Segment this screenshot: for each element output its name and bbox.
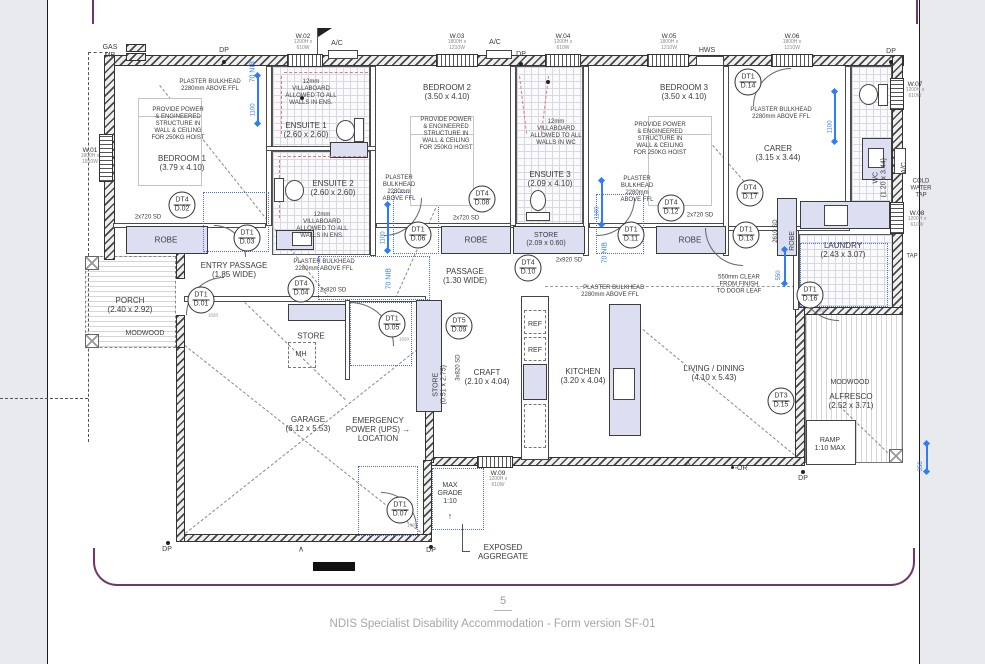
room-store-tall-label: STORE(0.51 x 2.75) [433, 365, 449, 404]
dimension-line-1100-3 [834, 92, 836, 142]
note-plaster-bulkhead-3-label: PLASTER BULKHEAD2280mm ABOVE FFL [293, 259, 354, 273]
grabrail-ens1-b [281, 76, 282, 134]
dp-dot-6 [801, 470, 805, 474]
ref-2-label: REF [528, 347, 542, 355]
door-tag-D.17: DT4D.17 [737, 180, 764, 207]
door-tag-D.05: DT1D.05 [379, 311, 406, 338]
exposed-leader-v [462, 524, 463, 551]
window-label-W.07: W.071200H x610W [906, 81, 925, 99]
door-tag-D.04: DT4D.04 [288, 276, 315, 303]
note-max-grade-label: MAXGRADE1:10 [438, 482, 463, 506]
note-villaboard-ens2-label: 12mmVILLABOARDALLOWED TO ALLWALLS IN ENS… [296, 212, 347, 240]
room-bedroom-3-label: BEDROOM 3(3.50 x 4.10) [660, 83, 708, 101]
note-cold-water-tap-label: COLDWATERTAP [911, 179, 932, 200]
note-hoist-1-label: PROVIDE POWER& ENGINEEREDSTRUCTURE INWAL… [151, 107, 204, 141]
ramp-label: RAMP1:10 MAX [815, 437, 846, 453]
kitchen-sink [613, 368, 635, 400]
note-exposed-aggregate-label: EXPOSEDAGGREGATE [478, 543, 528, 561]
page-number-underline [494, 610, 512, 611]
door-tag-D.06: DT1D.06 [405, 222, 432, 249]
swing-mark-1-label: ∧ [298, 544, 304, 553]
window-W.01 [99, 134, 113, 182]
dp-bottom-3-label: DP [798, 475, 808, 483]
sd-3x820-label: 3x820 SD [455, 354, 462, 380]
wall-segment-wall-entry-front-lower [176, 315, 185, 348]
toilet-ens2-bowl [285, 180, 304, 201]
ac-right-label: A/C [901, 162, 909, 174]
window-label-W.03: W.031800H x1210W [448, 33, 467, 51]
room-living-dining-label: LIVING / DINING(4.10 x 5.43) [684, 364, 745, 382]
ac-top-2-label: A/C [489, 39, 501, 47]
window-W.07 [890, 78, 904, 110]
room-store-nook-label: STORE [297, 331, 324, 340]
section-flag-icon [318, 28, 332, 37]
scale-bar [313, 562, 355, 571]
room-store-mid-label: STORE(2.09 x 0.60) [526, 232, 565, 248]
door-tag-D.01: DT1D.01 [188, 287, 215, 314]
robe-1-label: ROBE [155, 235, 178, 244]
door-leaf-size-D.16: 1020 [817, 307, 827, 312]
sd-2x920-label: 2x920 SD [556, 258, 582, 265]
mh-label: MH [296, 351, 307, 359]
dp-bottom-1-label: DP [162, 546, 172, 554]
door-tag-D.15: DT3D.15 [768, 388, 795, 415]
form-version-text: NDIS Specialist Disability Accommodation… [0, 618, 985, 630]
window-W.09 [477, 456, 513, 468]
toilet-ens1-bowl [336, 120, 355, 141]
window-W.04 [545, 54, 581, 67]
page-number: 5 [483, 595, 523, 607]
dp-top-3-label: DP [886, 48, 896, 56]
toilet-ens3-tank [526, 212, 550, 221]
door-tag-D.09: DT5D.09 [446, 313, 473, 340]
window-W.05 [647, 54, 689, 67]
window-W.08 [890, 202, 904, 234]
dimension-text-1100-2: 1100 [595, 206, 602, 219]
room-laundry-label: LAUNDRY(2.43 x 3.07) [821, 241, 866, 259]
room-wc-label: WC(1.20 x 3.44) [873, 158, 889, 197]
dp-top-1-label: DP [219, 47, 229, 55]
room-bedroom-2-label: BEDROOM 2(3.50 x 4.10) [423, 83, 471, 101]
window-label-W.09: W.091200H x610W [489, 470, 508, 488]
note-550-clear-label: 550mm CLEARFROM FINISHTO DOOR LEAF [717, 275, 762, 296]
robe-carer-label: ROBE [789, 231, 797, 251]
max-grade-arrow-label: ↑ [448, 511, 453, 521]
door-tag-D.16: DT1D.16 [797, 282, 824, 309]
ac-unit-2 [486, 50, 512, 59]
note-hoist-2-label: PROVIDE POWER& ENGINEEREDSTRUCTURE INWAL… [419, 117, 472, 151]
door-tag-D.14: DT1D.14 [735, 69, 762, 96]
window-label-W.04: W.041200H x610W [554, 33, 573, 51]
laundry-trough [824, 205, 848, 226]
window-W.06 [771, 54, 813, 67]
window-label-W.05: W.051800H x1210W [660, 33, 679, 51]
window-W.02 [287, 54, 323, 67]
window-label-W.01: W.011800H x1810W [81, 147, 100, 165]
room-craft-label: CRAFT(2.10 x 4.04) [465, 368, 510, 386]
dimension-text-1100-0: 1100 [251, 103, 258, 116]
room-garage-label: GARAGE(6.12 x 5.53) [286, 415, 331, 433]
door-tag-D.10: DT4D.10 [515, 255, 542, 282]
site-boundary-left [88, 52, 89, 442]
dimension-text-1100-3: 1100 [828, 120, 835, 133]
toilet-wc-bowl [859, 84, 878, 105]
dp-bottom-2-label: DP [426, 547, 436, 555]
room-kitchen-label: KITCHEN(3.20 x 4.04) [561, 367, 606, 385]
room-ensuite-2-label: ENSUITE 2(2.60 x 2.60) [311, 179, 356, 197]
note-plaster-bulkhead-6-label: ← PLASTER BULKHEAD2280mm ABOVE FFL [575, 285, 644, 299]
dimension-marker-bottom-0 [254, 120, 261, 127]
grabrail-ens1-a [284, 72, 368, 73]
dimension-text-1100-1: 1100 [381, 231, 388, 244]
ac-top-1-label: A/C [331, 40, 343, 48]
wall-segment-wall-garage-left [176, 340, 185, 542]
door-tag-D.12: DT4D.12 [658, 195, 685, 222]
dp-dot-1 [222, 60, 226, 64]
dp-top-2-label: DP [516, 51, 526, 59]
window-label-W.08: W.081200H x610W [908, 210, 927, 228]
room-alfresco-label: ALFRESCO(2.52 x 3.71) [829, 392, 874, 410]
site-boundary-west [0, 398, 88, 399]
gas-meter-label: GASMB [103, 44, 118, 60]
wall-segment-gas-meter-box-1 [126, 44, 146, 52]
wall-segment-wall-living-right [795, 307, 805, 466]
alfresco-post [889, 449, 903, 463]
hws-unit [696, 56, 724, 66]
toilet-ens2-tank [274, 178, 284, 202]
robe-3-label: ROBE [679, 235, 702, 244]
door-tag-D.07: DT1D.07 [387, 497, 414, 524]
door-tag-D.13: DT1D.13 [733, 222, 760, 249]
ceiling-line-4 [619, 310, 795, 455]
porch-post-1 [85, 256, 99, 270]
note-plaster-bulkhead-1-label: PLASTER BULKHEAD2280mm ABOVE FFL [179, 79, 240, 93]
note-plaster-bulkhead-5-label: PLASTER BULKHEAD2280mm ABOVE FFL [750, 107, 811, 121]
note-villaboard-wc-label: 12mmVILLABOARDALLOWED TO ALLWALLS IN WC [530, 119, 581, 147]
door-leaf-size-D.07: 1020 [407, 522, 417, 527]
sd-robe-2-label: 2x720 SD [453, 216, 479, 223]
wall-segment-wall-garage-right [423, 460, 432, 542]
door-tag-D.08: DT4D.08 [469, 186, 496, 213]
dp-dot-2 [519, 62, 523, 66]
hws-label: HWS [699, 47, 715, 55]
door-tag-D.11: DT1D.11 [618, 222, 645, 249]
fridge-lavender [523, 364, 547, 400]
toilet-ens1-tank [354, 118, 364, 142]
ref-1-label: REF [528, 321, 542, 329]
sd-2610-label: 2610 SD [773, 219, 780, 242]
ac-unit-1 [328, 50, 358, 59]
or-mark-label: ◦OR [735, 465, 748, 473]
toilet-ens3-bowl [530, 190, 546, 211]
door-tag-D.03: DT1D.03 [234, 225, 261, 252]
modwood-left-label: MODWOOD [126, 330, 165, 338]
dp-dot-4 [166, 541, 170, 545]
porch-post-2 [85, 334, 99, 348]
pantry-box [524, 404, 546, 448]
dimension-marker-top-5 [923, 440, 930, 447]
floor-plan-drawing: BEDROOM 1(3.79 x 4.10)ENSUITE 1(2.60 x 2… [0, 0, 985, 664]
note-villaboard-ens1-label: 12mmVILLABOARDALLOWED TO ALLWALLS IN ENS… [285, 79, 336, 107]
note-plaster-bulkhead-4-label: PLASTERBULKHEAD2280mmABOVE FFL [620, 176, 653, 204]
dimension-line-1100-0 [257, 76, 259, 124]
wall-segment-gas-meter-box-2 [126, 53, 146, 61]
dimension-marker-bottom-3 [831, 138, 838, 145]
sd-2x820-label: 2x820 SD [320, 288, 346, 295]
note-plaster-bulkhead-2-label: PLASTERBULKHEAD2280mmABOVE FFL [382, 175, 415, 203]
door-leaf-size-D.05: 1020 [399, 336, 409, 341]
room-porch-label: PORCH(2.40 x 2.92) [108, 296, 153, 314]
window-W.03 [436, 54, 478, 67]
robe-2-label: ROBE [465, 235, 488, 244]
partition-ens-bed2 [370, 66, 376, 256]
window-label-W.06: W.061800H x1210W [783, 33, 802, 51]
partition-bed2-ens3 [510, 66, 516, 226]
sd-robe-3-label: 2x720 SD [687, 213, 713, 220]
shower-rose-ens3 [546, 80, 550, 84]
room-passage-label: PASSAGE(1.30 WIDE) [443, 267, 487, 285]
grabrail-ens2-a [278, 156, 366, 157]
dimension-marker-top-2 [598, 177, 605, 184]
room-ensuite-3-label: ENSUITE 3(2.09 x 4.10) [528, 170, 573, 188]
nib-70-mid-label: 70 NIB [386, 268, 394, 289]
dimension-text-350-5: 350 [918, 461, 925, 471]
room-bedroom-1-label: BEDROOM 1(3.79 x 4.10) [158, 154, 206, 172]
dimension-text-550-4: 550 [776, 270, 783, 280]
page: BEDROOM 1(3.79 x 4.10)ENSUITE 1(2.60 x 2… [0, 0, 985, 664]
toilet-wc-tank [878, 84, 888, 106]
sd-robe-1-label: 2x720 SD [135, 215, 161, 222]
wall-segment-wall-entry-front-upper [176, 253, 185, 279]
door-leaf-size-D.01: 1020 [208, 312, 218, 317]
note-tap-label: TAP [906, 254, 917, 261]
modwood-right-label: MODWOOD [831, 379, 870, 387]
window-label-W.02: W.021200H x610W [294, 33, 313, 51]
dimension-marker-top-3 [831, 88, 838, 95]
dimension-marker-bottom-1 [384, 247, 391, 254]
room-ensuite-1-label: ENSUITE 1(2.60 x 2.60) [284, 121, 329, 139]
door-tag-D.02: DT4D.02 [169, 192, 196, 219]
swing-mark-2-label: ∧ [685, 458, 691, 467]
room-entry-passage-label: ENTRY PASSAGE(1.85 WIDE) [201, 261, 268, 279]
exposed-leader-h [462, 551, 470, 552]
dp-dot-3 [889, 60, 893, 64]
note-hoist-3-label: PROVIDE POWER& ENGINEEREDSTRUCTURE INWAL… [633, 122, 686, 156]
store-nook-bench [288, 304, 346, 321]
note-emergency-power-label: EMERGENCYPOWER (UPS) →LOCATION [346, 416, 410, 444]
nib-70-right-label: 70 NIB [602, 242, 610, 263]
room-carer-label: CARER(3.15 x 3.44) [756, 144, 801, 162]
